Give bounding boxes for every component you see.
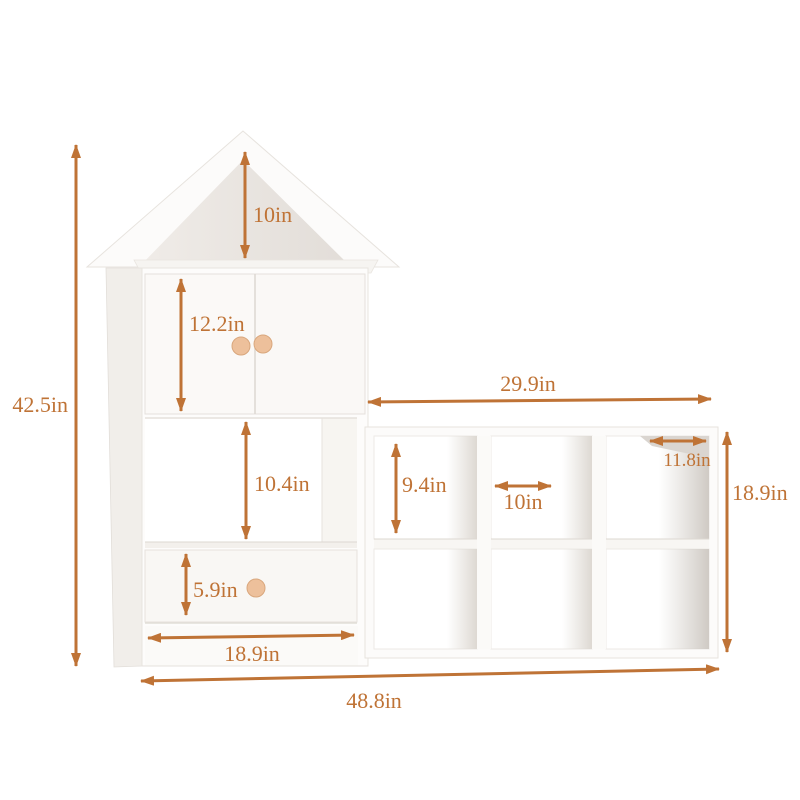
house-width-label: 18.9in xyxy=(224,641,280,666)
cube-opening-height-label: 9.4in xyxy=(402,472,447,497)
open-shelf-height-label: 10.4in xyxy=(254,471,310,496)
door-height-label: 12.2in xyxy=(189,311,245,336)
total-width-label: 48.8in xyxy=(346,688,402,713)
furniture-dimension-drawing: 42.5in 10in 12.2in 10.4in 5.9in 18.9in 2… xyxy=(0,0,800,800)
open-shelf-right-wall xyxy=(322,418,357,542)
drawer-knob xyxy=(247,579,265,597)
drawer-height-label: 5.9in xyxy=(193,577,238,602)
house-side-panel xyxy=(106,268,142,667)
open-shelf-bottom-board xyxy=(145,542,357,548)
total-width-arrow xyxy=(141,669,719,681)
divider-side-shade xyxy=(562,436,592,539)
cube-divider xyxy=(477,436,491,649)
divider-side-shade xyxy=(562,549,592,649)
dimension-diagram: 42.5in 10in 12.2in 10.4in 5.9in 18.9in 2… xyxy=(0,0,800,800)
cube-unit-width-arrow xyxy=(368,399,711,402)
cube-unit-width-label: 29.9in xyxy=(500,371,556,396)
cube-opening-width-label: 10in xyxy=(503,489,542,514)
cube-divider xyxy=(592,436,606,649)
house-cabinet xyxy=(87,131,399,667)
divider-side-shade xyxy=(447,549,477,649)
cube-unit-height-label: 18.9in xyxy=(732,480,788,505)
door-knob-right xyxy=(254,335,272,353)
divider-side-shade xyxy=(447,436,477,539)
total-height-label: 42.5in xyxy=(12,392,68,417)
door-knob-left xyxy=(232,337,250,355)
cube-middle-shelf xyxy=(374,539,709,549)
corner-cube-shade xyxy=(659,549,709,649)
roof-height-label: 10in xyxy=(253,202,292,227)
cube-depth-label: 11.8in xyxy=(663,450,711,471)
